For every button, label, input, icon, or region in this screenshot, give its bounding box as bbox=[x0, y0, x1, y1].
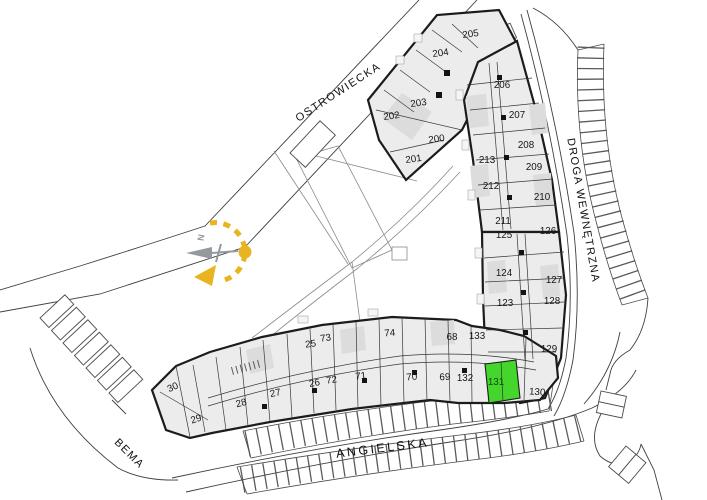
north-label: N bbox=[196, 233, 207, 241]
unit-label-206[interactable]: 206 bbox=[494, 80, 511, 91]
unit-label-133[interactable]: 133 bbox=[469, 331, 486, 342]
north-arrow: N bbox=[186, 223, 252, 286]
unit-label-213[interactable]: 213 bbox=[479, 155, 496, 166]
unit-label-125[interactable]: 125 bbox=[496, 230, 513, 241]
unit-label-129[interactable]: 129 bbox=[541, 344, 557, 355]
parking-leader bbox=[112, 400, 126, 414]
unit-label-71[interactable]: 71 bbox=[355, 370, 367, 382]
unit-label-128[interactable]: 128 bbox=[544, 296, 561, 307]
courtyard-path bbox=[352, 262, 360, 322]
unit-label-25[interactable]: 25 bbox=[304, 338, 317, 350]
unit-label-132[interactable]: 132 bbox=[457, 373, 473, 384]
unit-label-124[interactable]: 124 bbox=[496, 268, 513, 279]
east-road-edge bbox=[606, 298, 648, 390]
unit-label-211[interactable]: 211 bbox=[495, 216, 511, 227]
courtyard-path bbox=[252, 166, 453, 338]
unit-label-201[interactable]: 201 bbox=[405, 153, 423, 166]
unit-label-130[interactable]: 130 bbox=[529, 386, 547, 398]
unit-label-69[interactable]: 69 bbox=[439, 372, 450, 383]
unit-label-203[interactable]: 203 bbox=[410, 97, 428, 110]
unit-label-209[interactable]: 209 bbox=[526, 162, 542, 173]
parking-bema bbox=[40, 295, 143, 414]
unit-label-207[interactable]: 207 bbox=[509, 110, 525, 121]
north-arrow-shaft bbox=[212, 244, 238, 262]
site-plan-canvas: N OSTROWIECKA DROGA WEWNĘTRZNA ANGIELSKA… bbox=[0, 0, 707, 500]
unit-label-202[interactable]: 202 bbox=[383, 110, 401, 123]
parking-east-bays bbox=[596, 391, 645, 483]
sun-arrowhead-icon bbox=[194, 265, 216, 286]
unit-label-27[interactable]: 27 bbox=[269, 387, 282, 400]
unit-label-72[interactable]: 72 bbox=[325, 374, 337, 386]
courtyard-path bbox=[274, 151, 348, 264]
unit-label-204[interactable]: 204 bbox=[432, 47, 450, 60]
unit-label-205[interactable]: 205 bbox=[462, 28, 480, 41]
unit-label-70[interactable]: 70 bbox=[406, 372, 418, 384]
unit-label-68[interactable]: 68 bbox=[447, 332, 458, 343]
unit-label-200[interactable]: 200 bbox=[428, 133, 446, 146]
site-plan: N OSTROWIECKA DROGA WEWNĘTRZNA ANGIELSKA… bbox=[0, 0, 707, 500]
unit-label-210[interactable]: 210 bbox=[534, 192, 551, 203]
street-connector bbox=[533, 8, 578, 50]
east-road-edge bbox=[641, 444, 662, 500]
unit-label-123[interactable]: 123 bbox=[497, 298, 514, 309]
unit-label-126[interactable]: 126 bbox=[540, 226, 557, 237]
ostrowiecka-street-edge bbox=[0, 0, 419, 290]
courtyard-structure bbox=[392, 247, 407, 260]
street-lines bbox=[0, 0, 662, 500]
north-arrowhead-icon bbox=[186, 247, 212, 259]
unit-label-74[interactable]: 74 bbox=[384, 328, 396, 340]
unit-label-73[interactable]: 73 bbox=[319, 332, 332, 344]
sun-dot-icon bbox=[239, 246, 252, 259]
unit-label-208[interactable]: 208 bbox=[518, 140, 535, 151]
unit-label-131[interactable]: 131 bbox=[488, 377, 504, 388]
unit-label-127[interactable]: 127 bbox=[546, 275, 562, 286]
street-label-bema: BEMA bbox=[112, 436, 147, 471]
unit-label-212[interactable]: 212 bbox=[483, 181, 499, 192]
street-label-ostrowiecka: OSTROWIECKA bbox=[294, 60, 384, 124]
